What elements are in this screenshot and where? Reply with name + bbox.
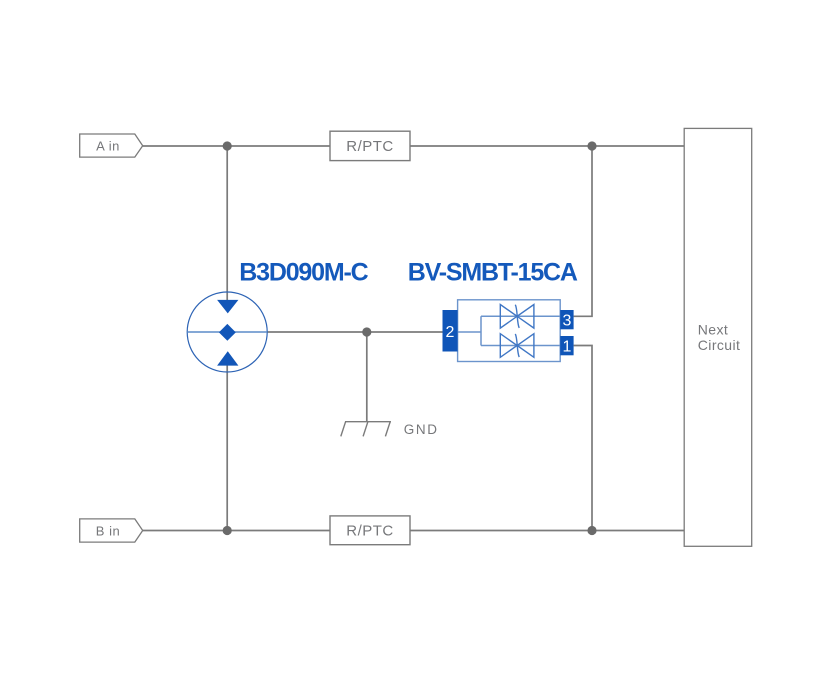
svg-text:B3D090M-C: B3D090M-C [239, 259, 368, 287]
svg-text:R/PTC: R/PTC [346, 138, 394, 155]
svg-text:3: 3 [562, 313, 571, 330]
svg-text:B in: B in [96, 523, 120, 538]
svg-text:R/PTC: R/PTC [346, 522, 394, 539]
svg-text:GND: GND [404, 422, 439, 437]
svg-text:2: 2 [446, 324, 455, 341]
svg-text:A in: A in [96, 139, 120, 154]
svg-text:Circuit: Circuit [698, 337, 740, 353]
svg-text:1: 1 [562, 339, 571, 356]
svg-text:BV-SMBT-15CA: BV-SMBT-15CA [408, 259, 578, 287]
svg-text:Next: Next [698, 322, 728, 338]
